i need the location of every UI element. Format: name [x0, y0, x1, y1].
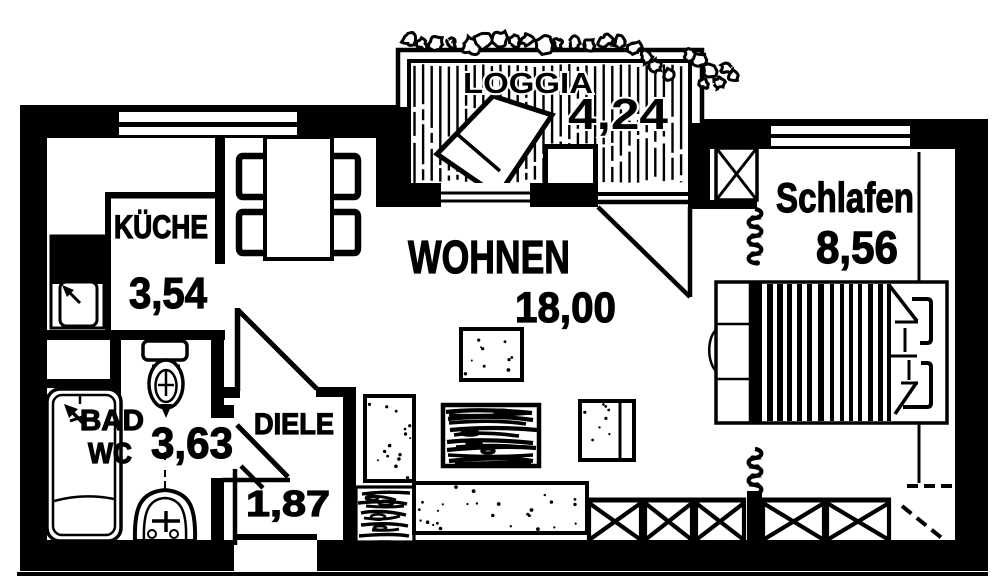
svg-text:Schlafen: Schlafen — [776, 174, 914, 221]
svg-text:3,63: 3,63 — [151, 419, 233, 468]
svg-text:4,24: 4,24 — [568, 90, 669, 139]
svg-text:WOHNEN: WOHNEN — [408, 231, 570, 283]
svg-text:3,54: 3,54 — [129, 269, 207, 318]
svg-text:8,56: 8,56 — [816, 222, 898, 273]
svg-text:18,00: 18,00 — [515, 284, 616, 332]
svg-text:WC: WC — [88, 438, 132, 470]
svg-text:KÜCHE: KÜCHE — [114, 209, 208, 245]
svg-text:DIELE: DIELE — [254, 408, 334, 441]
svg-text:BAD: BAD — [80, 405, 144, 437]
svg-text:1,87: 1,87 — [246, 483, 330, 524]
